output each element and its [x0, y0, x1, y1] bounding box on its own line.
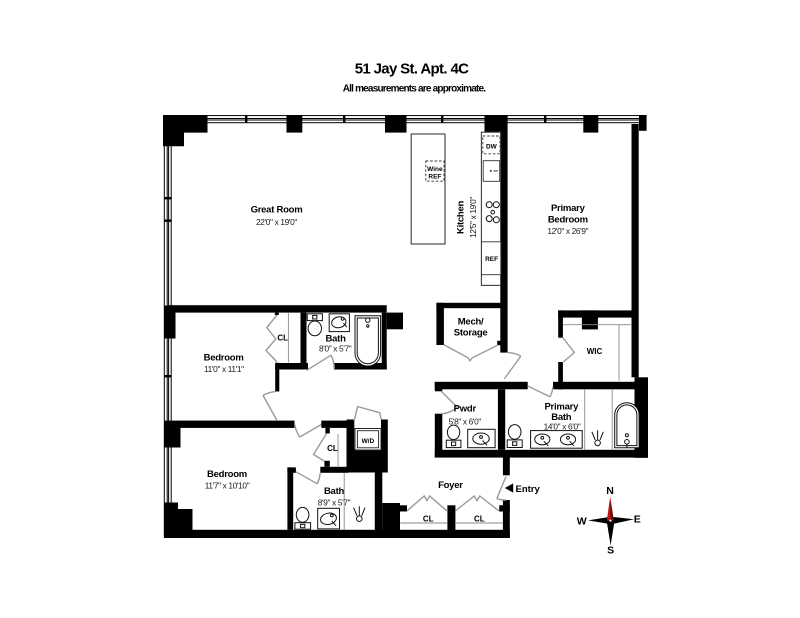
svg-text:Foyer: Foyer: [438, 480, 463, 491]
svg-text:Entry: Entry: [516, 484, 541, 495]
svg-text:DW: DW: [486, 143, 498, 150]
svg-text:S: S: [607, 545, 614, 557]
svg-text:WIC: WIC: [587, 347, 603, 356]
svg-text:11'0" x 11'1": 11'0" x 11'1": [204, 364, 244, 374]
svg-text:5'8" x 6'0": 5'8" x 6'0": [449, 417, 482, 427]
svg-text:Bedroom: Bedroom: [207, 469, 247, 480]
svg-text:CL: CL: [423, 514, 434, 523]
svg-text:CL: CL: [327, 444, 338, 453]
svg-text:Primary: Primary: [544, 401, 579, 412]
svg-text:12'5" x 19'0": 12'5" x 19'0": [468, 197, 478, 238]
svg-text:Primary: Primary: [551, 203, 586, 214]
svg-text:Bath: Bath: [324, 486, 345, 497]
svg-text:Great Room: Great Room: [251, 205, 303, 216]
svg-text:11'7" x 10'10": 11'7" x 10'10": [205, 480, 250, 490]
svg-text:Bedroom: Bedroom: [548, 215, 588, 226]
svg-text:CL: CL: [474, 514, 485, 523]
svg-text:W/D: W/D: [362, 438, 375, 445]
svg-text:N: N: [606, 485, 614, 497]
svg-text:14'0" x 6'0": 14'0" x 6'0": [544, 421, 581, 431]
svg-text:W: W: [577, 516, 587, 528]
svg-text:Bedroom: Bedroom: [204, 352, 244, 363]
svg-text:22'0" x 19'0": 22'0" x 19'0": [256, 217, 297, 227]
svg-text:REF: REF: [485, 256, 498, 263]
svg-text:REF: REF: [428, 173, 441, 180]
svg-text:12'0" x 26'9": 12'0" x 26'9": [547, 226, 588, 236]
svg-text:8'0" x 5'7": 8'0" x 5'7": [319, 344, 352, 354]
svg-text:E: E: [634, 514, 641, 526]
svg-text:8'9" x 5'7": 8'9" x 5'7": [318, 497, 351, 507]
svg-text:CL: CL: [277, 334, 288, 343]
svg-text:Kitchen: Kitchen: [456, 201, 467, 235]
svg-text:Wine: Wine: [427, 166, 443, 173]
svg-text:Storage: Storage: [454, 327, 488, 338]
svg-text:51 Jay St. Apt. 4C: 51 Jay St. Apt. 4C: [355, 60, 469, 77]
svg-text:All measurements are approxima: All measurements are approximate.: [343, 83, 487, 94]
svg-text:Pwdr: Pwdr: [454, 403, 477, 414]
svg-text:Mech/: Mech/: [458, 316, 484, 327]
